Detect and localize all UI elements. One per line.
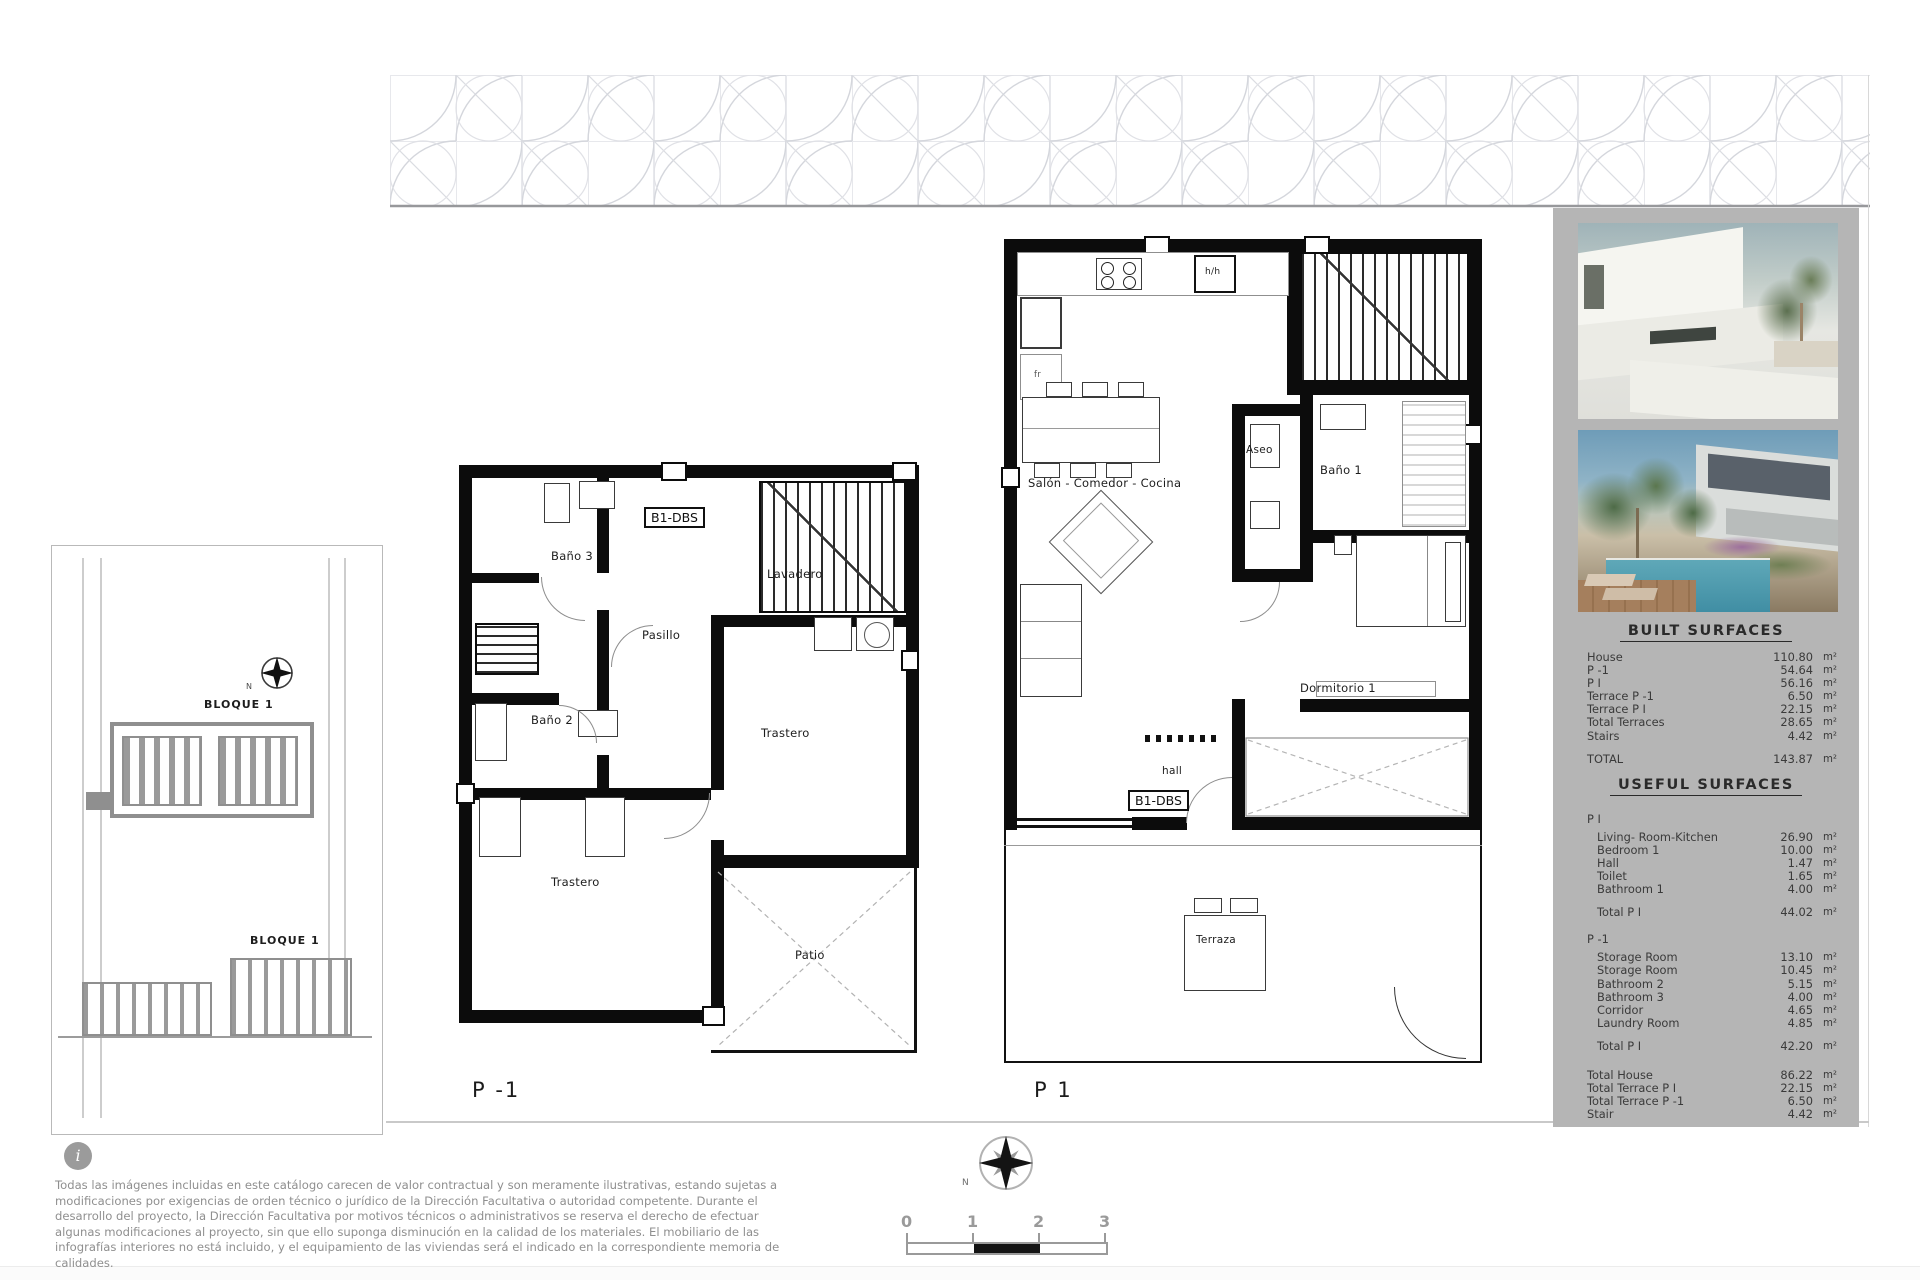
sink — [579, 481, 615, 509]
sofa-line — [1021, 658, 1081, 659]
room-label-bano3: Baño 3 — [551, 549, 593, 563]
room-label-pasillo: Pasillo — [642, 628, 680, 642]
row-unit: m² — [1813, 730, 1837, 743]
plan-basement: B1-DBS Baño 3 Lavadero Pasillo Baño 2 Tr… — [459, 465, 919, 1065]
terrace-wall — [1004, 830, 1006, 1063]
wall — [459, 465, 919, 478]
oven: h/h — [1194, 255, 1236, 293]
dotted-marker — [1145, 735, 1221, 742]
patio-wall-thin — [914, 868, 917, 1053]
door-arc — [1186, 777, 1232, 823]
chair — [1118, 382, 1144, 397]
nightstand — [1334, 535, 1352, 555]
row-value: 42.20 — [1767, 1040, 1813, 1053]
row-unit: m² — [1813, 690, 1837, 703]
table-row: Living- Room-Kitchen26.90m² — [1587, 831, 1837, 844]
room-label-bano1: Baño 1 — [1320, 463, 1362, 477]
room-label-lavadero: Lavadero — [767, 567, 823, 581]
table-row: Laundry Room4.85m² — [1587, 1017, 1837, 1030]
table-row: Stair4.42m² — [1587, 1108, 1837, 1121]
section-heading: P -1 — [1587, 933, 1837, 946]
row-unit: m² — [1813, 857, 1837, 870]
scale-tick-label: 1 — [967, 1212, 978, 1231]
row-label: Bathroom 2 — [1597, 978, 1767, 991]
row-unit: m² — [1813, 703, 1837, 716]
row-value: 4.42 — [1767, 1108, 1813, 1121]
washer-drum — [864, 622, 890, 648]
compass-icon — [975, 1132, 1037, 1194]
chair — [1082, 382, 1108, 397]
kitchen-counter — [1017, 252, 1289, 296]
burner — [1123, 262, 1136, 275]
row-label: Corridor — [1597, 1004, 1767, 1017]
row-label: House — [1587, 651, 1767, 664]
room-label-terraza: Terraza — [1196, 934, 1236, 946]
site-building-block — [122, 736, 202, 806]
row-value: 10.00 — [1767, 844, 1813, 857]
floor-label-p1: P 1 — [1034, 1078, 1073, 1102]
wall — [1232, 404, 1300, 416]
table-row: Bathroom 14.00m² — [1587, 883, 1837, 896]
site-compass-icon — [258, 654, 296, 692]
scale-tick — [972, 1233, 974, 1242]
wall — [459, 573, 539, 583]
table-row: Corridor4.65m² — [1587, 1004, 1837, 1017]
patio-wall-thin — [711, 1050, 917, 1053]
pillar — [901, 650, 919, 671]
wall — [1469, 239, 1482, 830]
fridge — [1020, 297, 1062, 349]
pillar — [1001, 467, 1020, 488]
site-north-label: N — [246, 682, 252, 691]
walkway — [1630, 360, 1838, 419]
storage-shelf — [479, 797, 521, 857]
shower — [1402, 401, 1466, 527]
info-icon: i — [64, 1142, 92, 1170]
row-label: Stair — [1587, 1108, 1767, 1121]
useful-surfaces-title: USEFUL SURFACES — [1610, 777, 1802, 796]
row-label: Storage Room — [1597, 964, 1767, 977]
wall — [1232, 569, 1313, 582]
hatched-zone — [1245, 737, 1469, 817]
blanket-line — [1427, 536, 1428, 626]
table-total-row: TOTAL143.87m² — [1587, 753, 1837, 766]
wall — [459, 465, 472, 1023]
row-value: 10.45 — [1767, 964, 1813, 977]
section-heading: P I — [1587, 813, 1837, 826]
stairs — [759, 481, 906, 613]
site-plan-box: N BLOQUE 1 BLOQUE 1 — [51, 545, 383, 1135]
built-surfaces-table: House110.80m² P -154.64m² P I56.16m² Ter… — [1553, 642, 1859, 766]
sheet-right-border — [1868, 75, 1869, 1127]
row-value: 28.65 — [1767, 716, 1813, 729]
plan-first-floor: h/h fr — [1004, 239, 1482, 1065]
table-row: Bedroom 110.00m² — [1587, 844, 1837, 857]
row-value: 4.85 — [1767, 1017, 1813, 1030]
site-block-label-top: BLOQUE 1 — [204, 698, 274, 711]
sidebar: BUILT SURFACES House110.80m² P -154.64m²… — [1553, 208, 1859, 1127]
table-row: Bathroom 34.00m² — [1587, 991, 1837, 1004]
row-unit: m² — [1813, 753, 1837, 766]
road-line — [344, 558, 346, 998]
wall — [1300, 699, 1469, 712]
row-label: Total P I — [1597, 1040, 1767, 1053]
row-label: Living- Room-Kitchen — [1597, 831, 1767, 844]
row-unit: m² — [1813, 716, 1837, 729]
terrace-wall — [1480, 830, 1482, 1063]
row-unit: m² — [1813, 664, 1837, 677]
row-label: Total Terrace P -1 — [1587, 1095, 1767, 1108]
row-value: 26.90 — [1767, 831, 1813, 844]
useful-surfaces-header: USEFUL SURFACES — [1553, 774, 1859, 796]
table-total-row: Total P I44.02m² — [1587, 906, 1837, 919]
built-surfaces-header: BUILT SURFACES — [1553, 620, 1859, 642]
terrace-door-arc — [1394, 987, 1466, 1059]
row-value: 44.02 — [1767, 906, 1813, 919]
scale-bar: 0 1 2 3 — [906, 1212, 1118, 1258]
window-line — [1017, 825, 1132, 828]
row-unit: m² — [1813, 883, 1837, 896]
sun-lounger — [1602, 588, 1658, 600]
wall — [711, 615, 724, 790]
row-unit: m² — [1813, 651, 1837, 664]
unit-tag: B1-DBS — [644, 507, 705, 528]
sink — [1320, 404, 1366, 430]
rug-inner — [1063, 502, 1139, 578]
wall — [459, 1010, 724, 1023]
row-unit: m² — [1813, 844, 1837, 857]
wall — [1004, 239, 1482, 252]
row-value: 4.00 — [1767, 991, 1813, 1004]
burner — [1101, 276, 1114, 289]
wall — [1004, 239, 1017, 830]
table-row: Bathroom 25.15m² — [1587, 978, 1837, 991]
row-label: Total Terraces — [1587, 716, 1767, 729]
row-unit: m² — [1813, 1095, 1837, 1108]
room-label-trastero-right: Trastero — [761, 726, 810, 740]
room-label-salon: Salón - Comedor - Cocina — [1028, 476, 1181, 490]
laundry-appliance — [814, 617, 852, 651]
row-unit: m² — [1813, 1069, 1837, 1082]
room-label-hall: hall — [1162, 765, 1182, 777]
scale-tick-label: 3 — [1099, 1212, 1110, 1231]
scale-tick-label: 2 — [1033, 1212, 1044, 1231]
pillar — [892, 462, 917, 481]
row-unit: m² — [1813, 1040, 1837, 1053]
window — [1584, 265, 1604, 309]
row-unit: m² — [1813, 677, 1837, 690]
stairs — [1300, 252, 1469, 382]
bed — [1356, 535, 1466, 627]
site-building-block — [218, 736, 298, 806]
palm-trunk — [1636, 508, 1639, 560]
sofa — [1020, 584, 1082, 697]
appliance-label: fr — [1034, 370, 1041, 380]
row-label: P -1 — [1587, 664, 1767, 677]
row-unit: m² — [1813, 964, 1837, 977]
site-entry-block — [86, 792, 112, 810]
site-block-label-bottom: BLOQUE 1 — [250, 934, 320, 947]
dining-table — [1022, 397, 1160, 463]
terrace-table: Terraza — [1184, 915, 1266, 991]
disclaimer-text: Todas las imágenes incluidas en este cat… — [55, 1178, 803, 1272]
wall — [1232, 699, 1245, 830]
site-elevation-right — [230, 958, 352, 1036]
room-label-dormitorio1: Dormitorio 1 — [1300, 681, 1376, 695]
row-value: 4.00 — [1767, 883, 1813, 896]
wall — [1300, 395, 1313, 574]
under-stair-storage — [475, 623, 539, 675]
row-label: Bathroom 1 — [1597, 883, 1767, 896]
road-line — [328, 558, 330, 998]
scale-bar-filled-segment — [974, 1244, 1040, 1253]
unit-tag: B1-DBS — [1128, 790, 1189, 811]
wall — [1232, 404, 1245, 574]
floor-label-p-1: P -1 — [472, 1078, 520, 1102]
burner — [1101, 262, 1114, 275]
row-unit: m² — [1813, 906, 1837, 919]
row-value: 4.65 — [1767, 1004, 1813, 1017]
pillar — [661, 462, 687, 481]
hob-icon — [1096, 258, 1142, 290]
scale-tick — [906, 1233, 908, 1242]
washing-machine — [856, 617, 894, 651]
wall — [597, 610, 609, 715]
terrace-line — [1004, 845, 1482, 846]
sun-lounger — [1584, 574, 1636, 586]
row-label: Bathroom 3 — [1597, 991, 1767, 1004]
row-unit: m² — [1813, 1017, 1837, 1030]
wall — [459, 693, 559, 705]
table-row: Total Terraces28.65m² — [1587, 716, 1837, 729]
summary-block: Total House86.22m² Total Terrace P I22.1… — [1587, 1069, 1837, 1121]
room-label-aseo: Aseo — [1246, 444, 1273, 456]
sofa-line — [1021, 621, 1081, 622]
scale-tick — [1104, 1233, 1106, 1242]
table-line — [1023, 428, 1159, 429]
chair — [1230, 898, 1258, 913]
row-unit: m² — [1813, 831, 1837, 844]
row-unit: m² — [1813, 870, 1837, 883]
row-label: TOTAL — [1587, 753, 1767, 766]
table-row: Storage Room10.45m² — [1587, 964, 1837, 977]
wall — [1289, 382, 1482, 395]
exterior-render-photo — [1578, 223, 1838, 419]
useful-surfaces-table: P I Living- Room-Kitchen26.90m² Bedroom … — [1553, 796, 1859, 1122]
oven-label: h/h — [1205, 267, 1220, 277]
row-value: 4.42 — [1767, 730, 1813, 743]
surfaces-tables: BUILT SURFACES House110.80m² P -154.64m²… — [1553, 612, 1859, 1121]
row-unit: m² — [1813, 991, 1837, 1004]
palm-tree — [1783, 249, 1838, 311]
row-unit: m² — [1813, 978, 1837, 991]
row-unit: m² — [1813, 1082, 1837, 1095]
table-row: Stairs4.42m² — [1587, 730, 1837, 743]
pillow — [1445, 542, 1461, 622]
compass-north-label: N — [962, 1178, 969, 1188]
table-total-row: Total P I42.20m² — [1587, 1040, 1837, 1053]
toilet — [544, 483, 570, 523]
scale-tick-label: 0 — [901, 1212, 912, 1231]
pillar — [1464, 424, 1482, 445]
row-unit: m² — [1813, 951, 1837, 964]
chair — [1046, 382, 1072, 397]
site-footprint — [110, 722, 314, 818]
decorative-frieze — [390, 75, 1870, 208]
door-arc — [541, 577, 585, 621]
built-surfaces-title: BUILT SURFACES — [1620, 623, 1792, 642]
wall — [1245, 817, 1482, 830]
row-label: Laundry Room — [1597, 1017, 1767, 1030]
door-arc — [664, 793, 710, 839]
scale-tick — [1038, 1233, 1040, 1242]
sink — [1250, 501, 1280, 529]
wall — [711, 855, 919, 868]
site-ground-line — [58, 1036, 372, 1038]
wall — [1132, 817, 1187, 830]
row-label: Bedroom 1 — [1597, 844, 1767, 857]
row-label: Stairs — [1587, 730, 1767, 743]
pillar — [456, 783, 475, 804]
chair — [1194, 898, 1222, 913]
door-arc — [1240, 582, 1280, 622]
wall — [597, 755, 609, 788]
row-unit: m² — [1813, 1004, 1837, 1017]
row-value: 5.15 — [1767, 978, 1813, 991]
window-line — [1017, 818, 1132, 821]
shower — [475, 703, 507, 761]
scale-bar-outline — [906, 1242, 1108, 1255]
rug — [1049, 490, 1154, 595]
room-label-trastero-left: Trastero — [551, 875, 600, 889]
site-elevation-left — [82, 982, 212, 1036]
burner — [1123, 276, 1136, 289]
row-unit: m² — [1813, 1108, 1837, 1121]
room-label-bano2: Baño 2 — [531, 713, 573, 727]
catalog-sheet: N BLOQUE 1 BLOQUE 1 — [0, 0, 1920, 1280]
pool-render-photo — [1578, 430, 1838, 612]
fence — [1774, 341, 1838, 367]
row-value: 143.87 — [1767, 753, 1813, 766]
storage-shelf — [585, 797, 625, 857]
room-label-patio: Patio — [795, 948, 825, 962]
row-label: Total P I — [1597, 906, 1767, 919]
terrace-wall — [1004, 1061, 1482, 1063]
